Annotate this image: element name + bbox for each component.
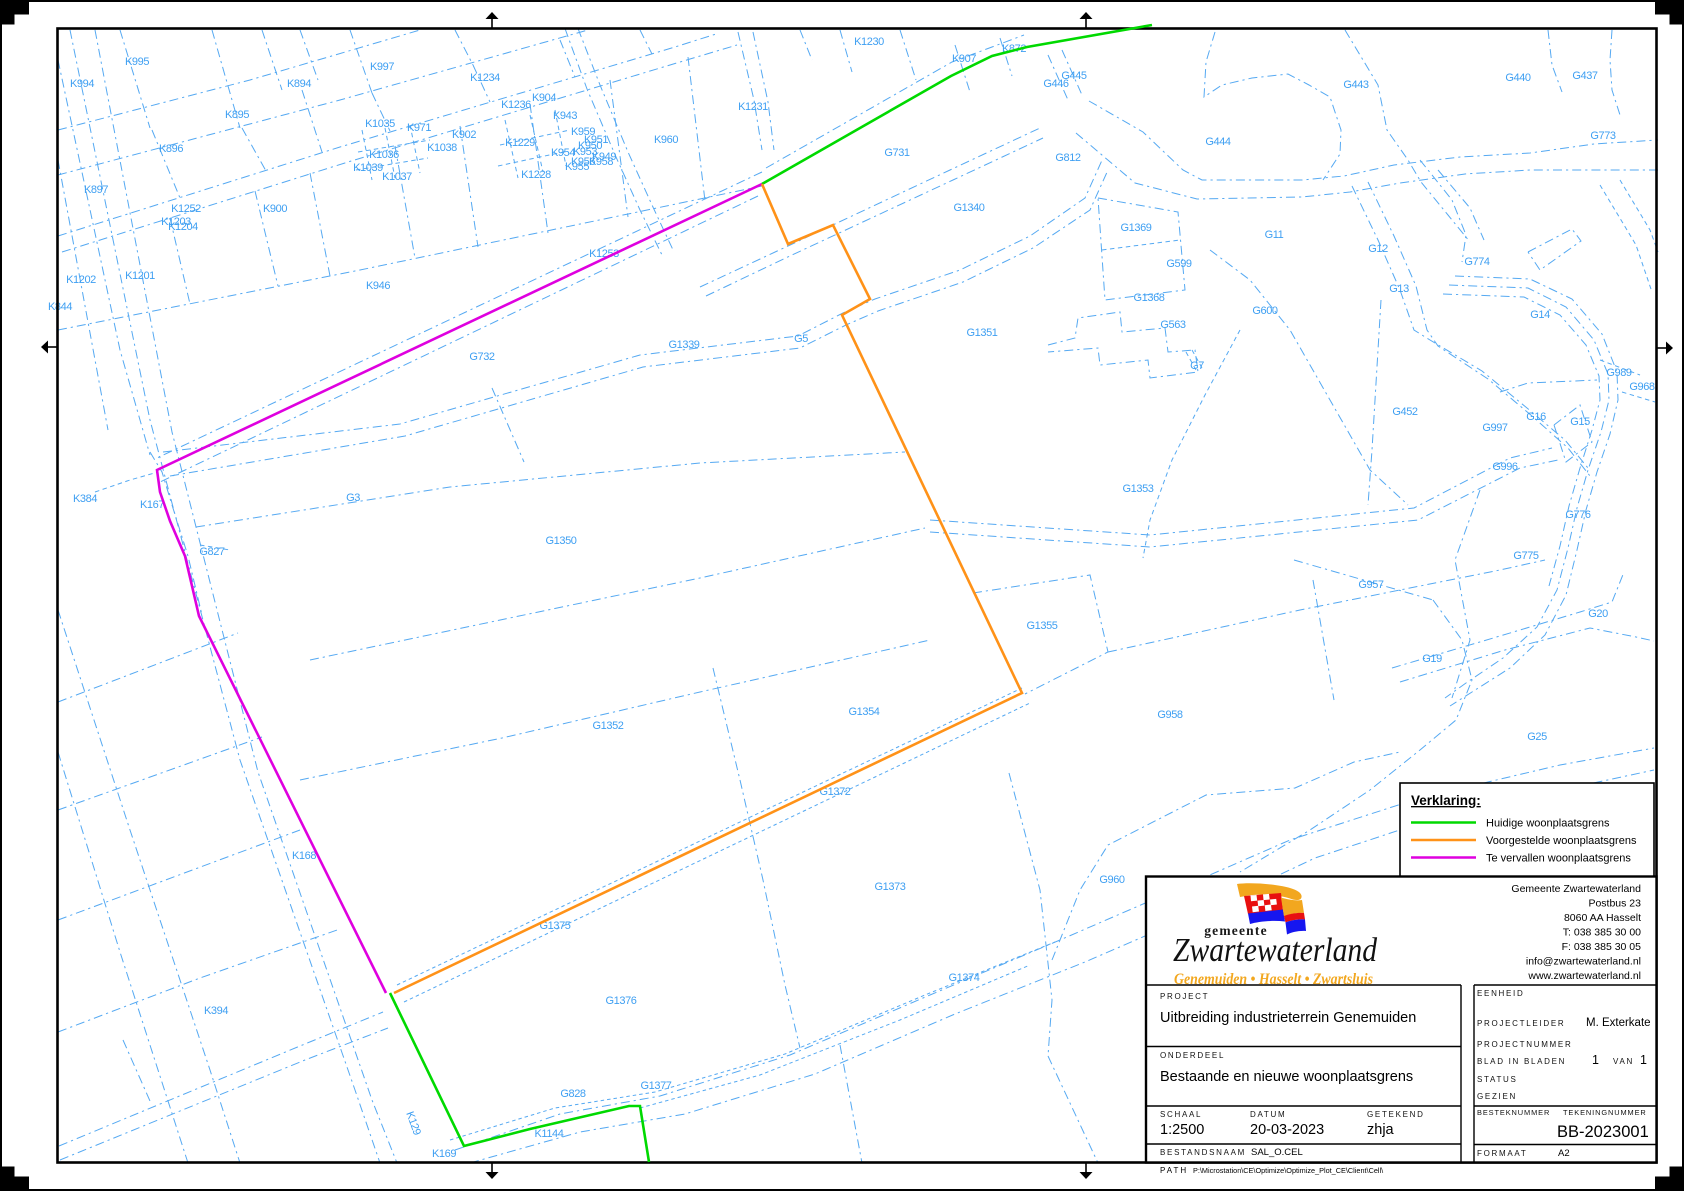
svg-text:G443: G443 <box>1343 79 1369 91</box>
svg-text:K1035: K1035 <box>365 118 395 130</box>
svg-text:K897: K897 <box>84 184 108 196</box>
svg-text:K997: K997 <box>370 61 394 73</box>
svg-text:DATUM: DATUM <box>1250 1110 1286 1119</box>
svg-text:Bestaande en nieuwe woonplaats: Bestaande en nieuwe woonplaatsgrens <box>1160 1069 1413 1085</box>
svg-text:K900: K900 <box>263 203 287 215</box>
svg-text:F: 038 385 30 05: F: 038 385 30 05 <box>1562 941 1642 953</box>
svg-text:BLAD IN BLADEN: BLAD IN BLADEN <box>1477 1057 1566 1066</box>
svg-text:K1252: K1252 <box>171 203 201 215</box>
svg-text:K844: K844 <box>48 301 72 313</box>
svg-text:K943: K943 <box>553 110 577 122</box>
svg-text:G732: G732 <box>469 351 495 363</box>
svg-text:1: 1 <box>1640 1053 1647 1067</box>
svg-text:T: 038 385 30 00: T: 038 385 30 00 <box>1563 927 1641 939</box>
svg-text:A2: A2 <box>1558 1148 1570 1159</box>
svg-text:G1355: G1355 <box>1026 620 1057 632</box>
svg-text:G563: G563 <box>1160 319 1186 331</box>
svg-text:K1236: K1236 <box>501 99 531 111</box>
svg-text:K1230: K1230 <box>854 36 884 48</box>
svg-text:PATH: PATH <box>1160 1166 1188 1175</box>
svg-text:Genemuiden • Hasselt • Zwartsl: Genemuiden • Hasselt • Zwartsluis <box>1174 971 1373 988</box>
svg-text:ONDERDEEL: ONDERDEEL <box>1160 1051 1225 1060</box>
svg-text:K946: K946 <box>366 280 390 292</box>
svg-text:G1376: G1376 <box>605 995 636 1007</box>
svg-text:20-03-2023: 20-03-2023 <box>1250 1122 1324 1138</box>
svg-text:G731: G731 <box>884 147 910 159</box>
svg-text:G812: G812 <box>1055 152 1081 164</box>
svg-text:G996: G996 <box>1492 461 1518 473</box>
svg-text:BESTANDSNAAM: BESTANDSNAAM <box>1160 1148 1246 1157</box>
svg-text:G1339: G1339 <box>668 339 699 351</box>
svg-text:G437: G437 <box>1572 70 1598 82</box>
svg-text:G444: G444 <box>1205 136 1231 148</box>
svg-text:G827: G827 <box>199 546 225 558</box>
svg-text:G960: G960 <box>1099 874 1125 886</box>
svg-text:PROJECT: PROJECT <box>1160 992 1209 1001</box>
svg-text:G14: G14 <box>1530 309 1550 321</box>
svg-text:G13: G13 <box>1389 283 1409 295</box>
svg-text:G452: G452 <box>1392 406 1418 418</box>
svg-text:VAN: VAN <box>1613 1057 1634 1066</box>
svg-text:G600: G600 <box>1252 305 1278 317</box>
svg-text:zhja: zhja <box>1367 1122 1395 1138</box>
svg-text:K1039: K1039 <box>353 162 383 174</box>
svg-text:G1377: G1377 <box>640 1080 671 1092</box>
svg-text:FORMAAT: FORMAAT <box>1477 1149 1527 1158</box>
svg-text:K1036: K1036 <box>369 149 399 161</box>
svg-text:G828: G828 <box>560 1088 586 1100</box>
svg-text:K1204: K1204 <box>168 221 198 233</box>
svg-text:G997: G997 <box>1482 422 1508 434</box>
svg-text:G11: G11 <box>1265 229 1284 241</box>
svg-text:Gemeente Zwartewaterland: Gemeente Zwartewaterland <box>1511 883 1641 895</box>
svg-text:info@zwartewaterland.nl: info@zwartewaterland.nl <box>1526 956 1641 968</box>
svg-text:Zwartewaterland: Zwartewaterland <box>1173 932 1378 969</box>
svg-text:K995: K995 <box>125 56 149 68</box>
svg-text:K1038: K1038 <box>427 142 457 154</box>
svg-text:G20: G20 <box>1588 608 1608 620</box>
svg-text:G774: G774 <box>1464 256 1490 268</box>
svg-text:K1144: K1144 <box>535 1128 564 1140</box>
svg-text:K167: K167 <box>140 499 164 511</box>
svg-text:G446: G446 <box>1043 78 1069 90</box>
svg-text:K1234: K1234 <box>470 72 500 84</box>
svg-text:K904: K904 <box>532 92 556 104</box>
svg-text:K394: K394 <box>204 1005 228 1017</box>
svg-text:G16: G16 <box>1526 411 1546 423</box>
svg-text:BESTEKNUMMER: BESTEKNUMMER <box>1477 1108 1550 1117</box>
svg-text:G25: G25 <box>1527 731 1547 743</box>
svg-text:K971: K971 <box>407 122 431 134</box>
svg-text:1: 1 <box>1592 1053 1599 1067</box>
svg-text:PROJECTLEIDER: PROJECTLEIDER <box>1477 1019 1565 1028</box>
svg-text:www.zwartewaterland.nl: www.zwartewaterland.nl <box>1527 970 1641 982</box>
svg-text:TEKENINGNUMMER: TEKENINGNUMMER <box>1563 1108 1647 1117</box>
svg-text:STATUS: STATUS <box>1477 1075 1518 1084</box>
svg-text:G1374: G1374 <box>948 972 979 984</box>
svg-text:G1354: G1354 <box>848 706 879 718</box>
svg-text:K1231: K1231 <box>738 101 768 113</box>
svg-text:K955: K955 <box>565 161 589 173</box>
svg-text:G957: G957 <box>1358 579 1384 591</box>
svg-text:M. Exterkate: M. Exterkate <box>1586 1017 1651 1029</box>
svg-text:Huidige woonplaatsgrens: Huidige woonplaatsgrens <box>1486 818 1610 830</box>
svg-text:K1037: K1037 <box>382 171 412 183</box>
svg-text:EENHEID: EENHEID <box>1477 989 1524 998</box>
svg-text:G773: G773 <box>1590 130 1616 142</box>
svg-text:G989: G989 <box>1606 367 1632 379</box>
svg-text:GEZIEN: GEZIEN <box>1477 1092 1517 1101</box>
svg-text:K994: K994 <box>70 78 94 90</box>
svg-text:K907: K907 <box>952 53 976 65</box>
svg-text:K896: K896 <box>159 143 183 155</box>
svg-text:G1353: G1353 <box>1122 483 1153 495</box>
svg-text:SAL_O.CEL: SAL_O.CEL <box>1251 1147 1303 1158</box>
svg-text:G775: G775 <box>1513 550 1539 562</box>
svg-text:K958: K958 <box>589 156 613 168</box>
svg-text:K960: K960 <box>654 134 678 146</box>
svg-text:G1352: G1352 <box>592 720 623 732</box>
svg-text:G12: G12 <box>1368 243 1388 255</box>
svg-text:K902: K902 <box>452 129 476 141</box>
svg-text:1:2500: 1:2500 <box>1160 1122 1204 1138</box>
svg-text:G15: G15 <box>1570 416 1590 428</box>
svg-text:G968: G968 <box>1629 381 1655 393</box>
svg-text:G599: G599 <box>1166 258 1192 270</box>
svg-text:G7: G7 <box>1190 360 1204 372</box>
svg-text:SCHAAL: SCHAAL <box>1160 1110 1202 1119</box>
svg-text:G1351: G1351 <box>966 327 997 339</box>
svg-text:BB-2023001: BB-2023001 <box>1557 1123 1649 1141</box>
svg-text:PROJECTNUMMER: PROJECTNUMMER <box>1477 1040 1572 1049</box>
svg-text:K954: K954 <box>551 147 575 159</box>
svg-text:G958: G958 <box>1157 709 1183 721</box>
svg-text:K1201: K1201 <box>125 270 155 282</box>
svg-text:G1340: G1340 <box>953 202 984 214</box>
svg-text:K894: K894 <box>287 78 311 90</box>
svg-text:G1373: G1373 <box>874 881 905 893</box>
svg-text:K1202: K1202 <box>66 274 96 286</box>
svg-text:8060 AA Hasselt: 8060 AA Hasselt <box>1564 912 1641 924</box>
svg-text:Postbus 23: Postbus 23 <box>1588 898 1641 910</box>
svg-text:G3: G3 <box>346 492 360 504</box>
svg-text:G19: G19 <box>1422 653 1442 665</box>
svg-text:K895: K895 <box>225 109 249 121</box>
svg-text:K1229: K1229 <box>505 137 535 149</box>
svg-text:G1368: G1368 <box>1133 292 1164 304</box>
svg-text:K168: K168 <box>292 850 316 862</box>
svg-text:G5: G5 <box>794 333 808 345</box>
svg-text:Voorgestelde woonplaatsgrens: Voorgestelde woonplaatsgrens <box>1486 835 1637 847</box>
svg-text:K384: K384 <box>73 493 97 505</box>
svg-text:G1369: G1369 <box>1120 222 1151 234</box>
svg-text:G776: G776 <box>1565 509 1591 521</box>
svg-text:GETEKEND: GETEKEND <box>1367 1110 1425 1119</box>
svg-text:Uitbreiding industrieterrein G: Uitbreiding industrieterrein Genemuiden <box>1160 1010 1416 1026</box>
svg-text:G1350: G1350 <box>545 535 576 547</box>
svg-text:G440: G440 <box>1505 72 1531 84</box>
svg-text:K169: K169 <box>432 1148 456 1160</box>
svg-text:P:\Microstation\CE\Optimize\Op: P:\Microstation\CE\Optimize\Optimize_Plo… <box>1193 1166 1384 1175</box>
svg-text:Te vervallen woonplaatsgrens: Te vervallen woonplaatsgrens <box>1486 853 1631 865</box>
svg-text:Verklaring:: Verklaring: <box>1411 793 1481 808</box>
svg-text:K1228: K1228 <box>521 169 551 181</box>
